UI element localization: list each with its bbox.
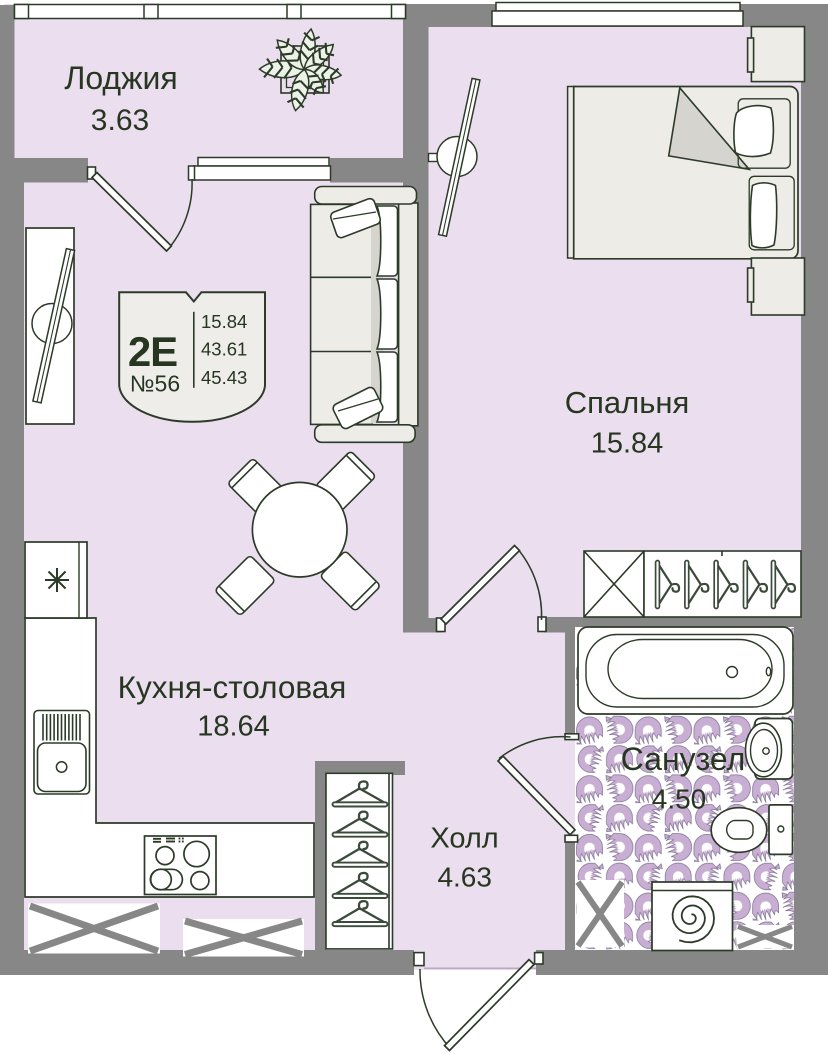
svg-text:15.84: 15.84 [201, 311, 247, 332]
svg-text:4.50: 4.50 [652, 784, 707, 815]
svg-text:Спальня: Спальня [565, 385, 690, 420]
svg-text:Холл: Холл [430, 823, 498, 855]
svg-text:Лоджия: Лоджия [64, 60, 177, 96]
svg-text:3.63: 3.63 [91, 104, 149, 137]
svg-text:2Е: 2Е [128, 328, 177, 375]
svg-text:Санузел: Санузел [621, 741, 746, 777]
svg-text:43.61: 43.61 [201, 339, 247, 360]
svg-text:№56: №56 [130, 371, 180, 397]
svg-text:Кухня-столовая: Кухня-столовая [118, 669, 347, 705]
svg-text:4.63: 4.63 [437, 862, 492, 893]
svg-text:15.84: 15.84 [591, 428, 664, 460]
svg-text:45.43: 45.43 [201, 367, 247, 388]
svg-text:18.64: 18.64 [197, 711, 270, 743]
